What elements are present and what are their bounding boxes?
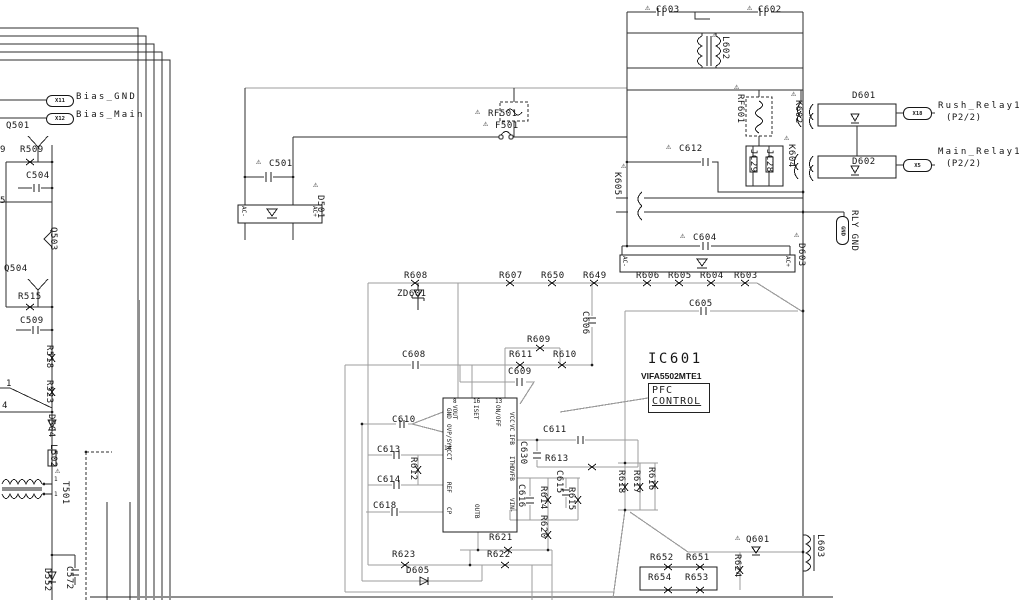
pin-label-ct: CT [445,453,451,460]
pin-label-cp: CP [445,507,451,514]
connector-rly-gnd: GND [836,216,849,245]
connector-main-relay: X5 [903,159,932,172]
r609-label: R609 [527,336,551,345]
warning-icon: ⚠ [712,31,717,40]
r608-label: R608 [404,272,428,281]
pfc-label: PFC [652,385,706,396]
t501-pin-label: 1 [54,492,58,498]
d601-label: D601 [852,92,876,101]
connector-x11: X11 [46,95,74,107]
r623-label: R623 [392,551,416,560]
connector-main-label: X5 [914,163,921,169]
c618-label: C618 [373,502,397,511]
c604-label: C604 [693,234,717,243]
r607-label: R607 [499,272,523,281]
c609-label: C609 [508,368,532,377]
rush-page-label: (P2/2) [946,114,982,123]
warning-icon: ⚠ [483,120,488,129]
t501-label: T501 [60,481,69,505]
d602-label: D602 [852,158,876,167]
d501-label: D501 [315,195,324,219]
c608-label: C608 [402,351,426,360]
k605-label: K605 [612,172,621,196]
label-fragment: 4 [2,402,8,411]
c606-label: C606 [580,311,589,335]
c630-label: C630 [518,441,527,465]
r652-label: R652 [650,554,674,563]
r605-label: R605 [668,272,692,281]
c572-label: C572 [64,566,73,590]
d605-label: D605 [406,567,430,576]
connector-x12-label: X12 [55,116,65,122]
rush-relay-label: Rush_Relay1 [938,102,1022,111]
pin-label-iset: ISET [472,405,478,419]
rf601-label: RF601 [735,94,744,124]
connector-x11-label: X11 [55,98,65,104]
warning-icon: ⚠ [735,534,740,543]
r613-label: R613 [545,455,569,464]
jc29-label: JC29 [748,149,757,173]
r624-label: R624 [732,554,741,578]
label-fragment: 5 [0,197,6,206]
control-label: CONTROL [652,396,706,407]
c509-label: C509 [20,317,44,326]
connector-rush-relay: X18 [903,107,932,120]
r650-label: R650 [541,272,565,281]
c614-label: C614 [377,476,401,485]
ac-minus-label: AC- [621,256,627,267]
q501-label: Q501 [6,122,30,131]
zd601-label: ZD601 [397,290,427,299]
r604-label: R604 [700,272,724,281]
r611-label: R611 [509,351,533,360]
c613-label: C613 [377,446,401,455]
pin-label-vinm: VIN- [508,498,514,512]
warning-icon: ⚠ [645,4,650,13]
main-relay-label: Main_Relay1 [938,148,1022,157]
connector-rush-label: X18 [913,111,923,117]
r620-label: R620 [538,515,547,539]
rly-gnd-label: RLY GND [849,210,858,251]
warning-icon: ⚠ [794,231,799,240]
r654-label: R654 [648,574,672,583]
connector-gnd-label: GND [840,226,846,236]
c616-label: C616 [516,484,525,508]
q601-label: Q601 [746,536,770,545]
warning-icon: ⚠ [256,158,261,167]
pin-label-vc: VC [508,424,514,431]
warning-icon: ⚠ [747,4,752,13]
k604-label: K604 [786,144,795,168]
bias-gnd-label: Bias_GND [76,93,137,102]
r509-label: R509 [20,146,44,155]
ac-plus-label: AC+ [784,256,790,267]
label-fragment: 9 [0,146,6,155]
c605-label: C605 [689,300,713,309]
d552-label: D552 [42,568,51,592]
c611-label: C611 [543,426,567,435]
c615-label: C615 [554,470,563,494]
r523-label: R523 [44,380,53,404]
r651-label: R651 [686,554,710,563]
l603-label: L603 [815,534,824,558]
l502-label: L502 [48,444,57,468]
r621-label: R621 [489,534,513,543]
pin-label-vcc: VCC [508,412,514,423]
warning-icon: ⚠ [313,181,318,190]
warning-icon: ⚠ [734,83,739,92]
label-fragment: 1 [6,380,12,389]
r518-label: R518 [44,345,53,369]
c612-label: C612 [679,145,703,154]
rf501-label: RF501 [488,110,518,119]
r616-label: R616 [646,467,655,491]
c501-label: C501 [269,160,293,169]
ac-minus-label: AC- [240,206,246,217]
r515-label: R515 [18,293,42,302]
warning-icon: ⚠ [55,467,60,476]
pin-label-vfb: VFB [508,470,514,481]
r622-label: R622 [487,551,511,560]
r603-label: R603 [734,272,758,281]
c610-label: C610 [392,416,416,425]
connector-x12: X12 [46,113,74,125]
d603-label: D603 [796,243,805,267]
pin-label-ithd: ITHD [508,456,514,470]
r614-label: R614 [538,486,547,510]
warning-icon: ⚠ [475,108,480,117]
k602-label: K602 [793,100,802,124]
pin-label-ref: REF [445,482,451,493]
ic601-ref-label: IC601 [648,352,703,366]
warning-icon: ⚠ [680,232,685,241]
pin-label-onoff: ON/OFF [494,405,500,427]
pin-number: 14 [444,446,451,452]
warning-icon: ⚠ [791,90,796,99]
r653-label: R653 [685,574,709,583]
d504-label: D504 [46,414,55,438]
schematic-page: X11 X12 X18 X5 GND PFC CONTROL C603C602L… [0,0,1024,600]
r615-label: R615 [566,487,575,511]
q503-label: Q503 [48,227,57,251]
pfc-control-callout: PFC CONTROL [648,383,710,413]
main-page-label: (P2/2) [946,160,982,169]
warning-icon: ⚠ [621,162,626,171]
r610-label: R610 [553,351,577,360]
f501-label: F501 [495,122,519,131]
bias-main-label: Bias_Main [76,111,145,120]
warning-icon: ⚠ [784,134,789,143]
pin-label-ifb: IFB [508,434,514,445]
r606-label: R606 [636,272,660,281]
pin-label-gnd: GND [445,408,451,419]
q504-label: Q504 [4,265,28,274]
c602-label: C602 [758,6,782,15]
t501-pin-label: 1 [54,477,58,483]
c504-label: C504 [26,172,50,181]
r649-label: R649 [583,272,607,281]
ic601-part-label: VIFA5502MTE1 [641,372,701,381]
l602-label: L602 [720,36,729,60]
pin-label-outb: OUTB [473,504,479,518]
r618-label: R618 [616,470,625,494]
jc28-label: JC28 [764,149,773,173]
r612-label: R612 [408,457,417,481]
warning-icon: ⚠ [666,143,671,152]
r617-label: R617 [631,470,640,494]
c603-label: C603 [656,6,680,15]
